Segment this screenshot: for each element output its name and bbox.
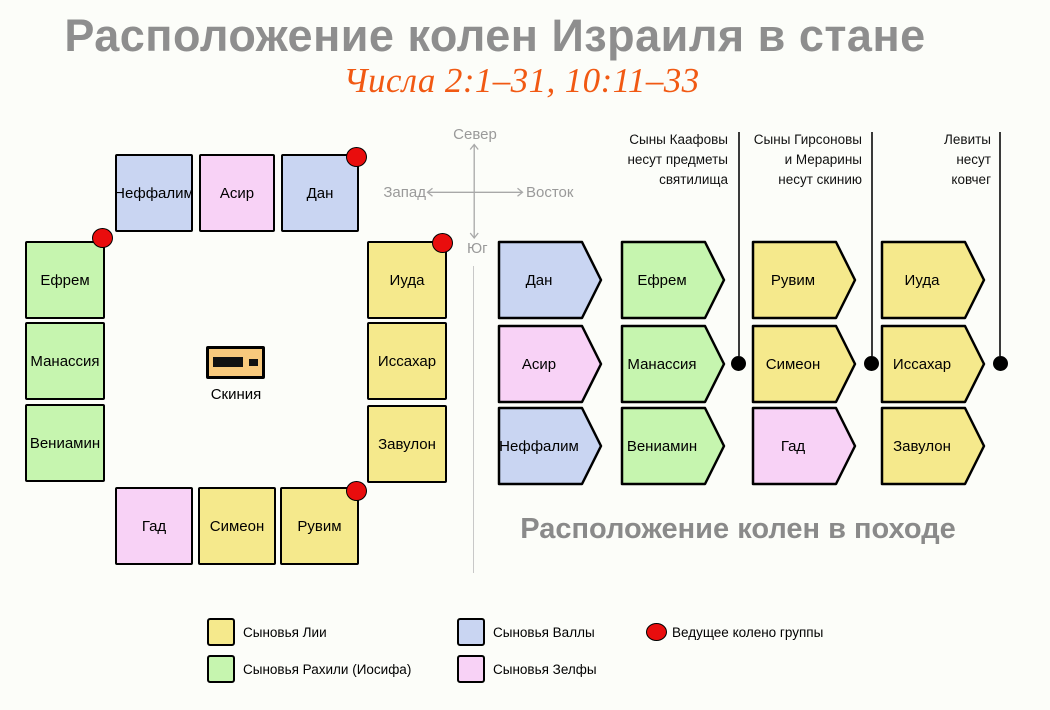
svg-text:Дан: Дан (526, 272, 553, 289)
svg-text:Неффалим: Неффалим (499, 438, 579, 455)
svg-text:Вениамин: Вениамин (627, 438, 697, 455)
svg-text:Иуда: Иуда (905, 272, 941, 289)
svg-text:Ефрем: Ефрем (637, 272, 686, 289)
svg-text:Рувим: Рувим (771, 272, 815, 289)
svg-text:Симеон: Симеон (766, 356, 821, 373)
svg-text:Манассия: Манассия (627, 356, 696, 373)
svg-text:Гад: Гад (781, 438, 806, 455)
svg-text:Иссахар: Иссахар (893, 356, 951, 373)
svg-text:Завулон: Завулон (893, 438, 951, 455)
svg-text:Асир: Асир (522, 356, 556, 373)
